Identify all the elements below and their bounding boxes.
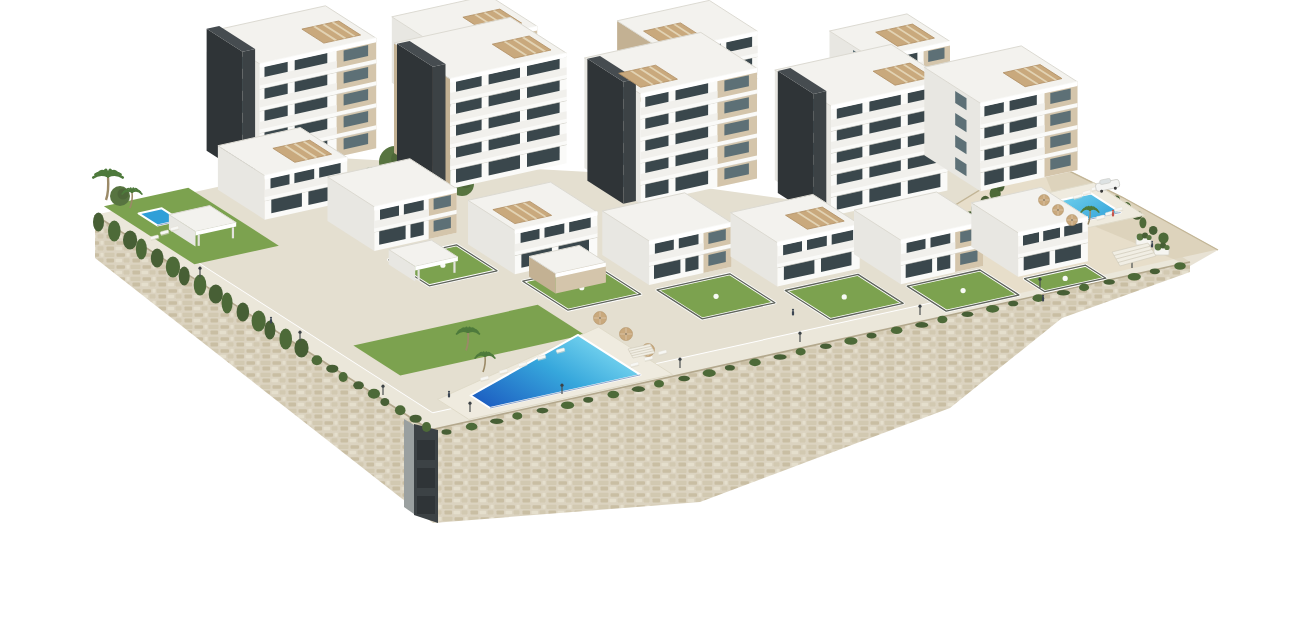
hedge-tuft: [561, 401, 574, 409]
hedge-tuft: [1150, 269, 1160, 275]
hedge-tuft: [512, 412, 522, 420]
hedge-tuft: [820, 344, 832, 350]
person-body: [1112, 212, 1114, 217]
hedge-tuft: [1158, 233, 1168, 244]
hedge-tuft: [937, 316, 947, 324]
hedge-tuft: [466, 423, 478, 431]
hedge-tuft: [1174, 262, 1186, 270]
palm-frond: [108, 175, 123, 178]
hedge-tuft: [867, 333, 877, 339]
hedge-tuft: [1008, 301, 1018, 307]
hedge-tuft: [179, 267, 190, 286]
wall-corner-pillar: [404, 419, 414, 514]
hedge-tuft: [166, 257, 180, 278]
parasol-pole: [1071, 219, 1073, 221]
hedge-tuft: [1079, 284, 1089, 292]
property-aerial-render: [0, 0, 1290, 620]
hedge-tuft: [490, 418, 503, 424]
parasol-pole: [599, 317, 601, 319]
hedge-tuft: [1057, 290, 1070, 296]
hedge-tuft: [654, 380, 664, 388]
hedge-tuft: [339, 372, 348, 382]
hedge-tuft: [108, 221, 121, 242]
parasol-3: [1039, 195, 1050, 206]
tower-3: [584, 32, 757, 204]
lamp-head: [298, 331, 301, 334]
hedge-tuft: [264, 321, 275, 340]
hedge-tuft: [237, 303, 250, 322]
hedge-tuft: [252, 311, 266, 332]
person-0: [1112, 210, 1114, 217]
tower-4: [775, 44, 948, 216]
garden-villa-6-patio-table: [960, 288, 965, 293]
hedge-tuft: [297, 348, 306, 356]
person-5: [270, 317, 272, 324]
garden-villa-5-patio-table: [842, 294, 847, 299]
garden-villa-4-patio-table: [713, 294, 718, 299]
person-body: [1042, 297, 1044, 302]
lamp-head: [1038, 278, 1041, 281]
hedge-tuft: [962, 311, 974, 317]
lamp-head: [468, 402, 471, 405]
person-head: [270, 317, 272, 319]
hedge-tuft: [1149, 226, 1158, 235]
hedge-tuft: [725, 365, 735, 371]
wall-corner-block-2: [417, 496, 435, 514]
person-4: [448, 391, 450, 398]
hedge-tuft: [537, 408, 549, 414]
hedge-tuft: [607, 391, 619, 399]
person-head: [1112, 210, 1114, 212]
hedge-tuft: [312, 355, 323, 365]
hedge-tuft: [703, 369, 716, 377]
hedge-tuft: [279, 329, 292, 350]
lamp-head: [381, 385, 384, 388]
person-body: [448, 393, 450, 398]
hedge-tuft: [422, 422, 431, 432]
tower-3-core-side: [587, 59, 623, 204]
person-head: [1042, 295, 1044, 297]
hedge-tuft: [678, 376, 690, 382]
hedge-tuft: [123, 231, 137, 250]
tower-2-core-front: [433, 64, 446, 189]
parasol-0: [594, 312, 607, 325]
parasol-pole: [1057, 209, 1059, 211]
hedge-tuft: [796, 348, 806, 356]
tower-2: [394, 17, 567, 189]
hedge-tuft: [194, 275, 207, 296]
parasol-1: [620, 328, 633, 341]
hedge-tuft: [1139, 217, 1146, 228]
render-canvas: [0, 0, 1290, 620]
lamp-head: [798, 332, 801, 335]
tower-3-core-front: [623, 79, 636, 204]
tower-4-core-side: [778, 71, 814, 216]
hedge-tuft: [368, 389, 380, 399]
parasol-pole: [1043, 199, 1045, 201]
palm-trunk: [106, 176, 108, 200]
lamp-head: [918, 305, 921, 308]
hedge-tuft: [915, 322, 928, 328]
hedge-tuft: [353, 381, 364, 389]
person-3: [792, 309, 794, 316]
hedge-tuft: [93, 213, 104, 232]
hedge-tuft: [1103, 279, 1115, 285]
hedge-tuft: [410, 415, 422, 423]
parasol-pole: [625, 333, 627, 335]
hedge-tuft: [395, 405, 406, 415]
person-head: [792, 309, 794, 311]
wall-corner-block-0: [417, 440, 435, 460]
hedge-tuft: [209, 285, 223, 304]
garden-villa-7-patio-table: [1063, 276, 1068, 281]
person-body: [792, 311, 794, 316]
lamp-head: [560, 384, 563, 387]
hedge-tuft: [773, 354, 786, 360]
person-body: [270, 319, 272, 324]
parasol-5: [1067, 215, 1078, 226]
wall-corner-block-1: [417, 468, 435, 488]
lamp-head: [678, 358, 681, 361]
hedge-tuft: [749, 359, 761, 367]
hedge-tuft: [583, 397, 593, 403]
hedge-tuft: [151, 249, 164, 268]
hedge-tuft: [222, 293, 233, 314]
hedge-tuft: [136, 239, 147, 260]
hedge-tuft: [986, 305, 999, 313]
hedge-tuft: [891, 326, 903, 334]
hedge-tuft: [1128, 273, 1141, 281]
lamp-head: [198, 267, 201, 270]
planter-shrub3: [1146, 235, 1151, 240]
hedge-tuft: [844, 337, 857, 345]
person-head: [448, 391, 450, 393]
planter-shrub3: [1164, 245, 1169, 250]
parasol-4: [1053, 205, 1064, 216]
hedge-tuft: [442, 429, 452, 435]
hedge-tuft: [632, 386, 645, 392]
person-2: [1042, 295, 1044, 302]
hedge-tuft: [380, 398, 389, 406]
hedge-tuft: [326, 365, 338, 373]
tower-5: [924, 46, 1077, 191]
